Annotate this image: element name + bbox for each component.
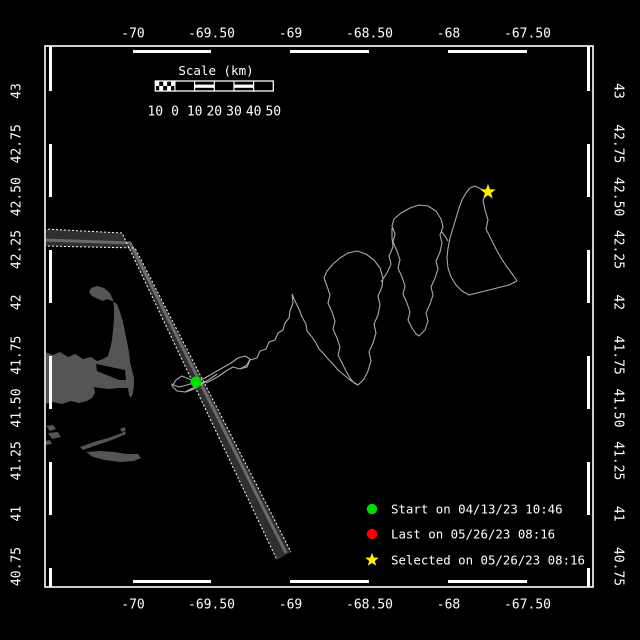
selected-star-icon: [365, 553, 379, 566]
axis-label-bottom: -69: [279, 598, 302, 613]
legend: Start on 04/13/23 10:46Last on 05/26/23 …: [365, 502, 585, 568]
axis-label-top: -68: [437, 27, 460, 42]
axis-label-left: 40.75: [10, 547, 25, 586]
axis-label-right: 42.25: [611, 230, 626, 269]
axis-label-left: 41.75: [10, 336, 25, 375]
axis-label-left: 41: [10, 506, 25, 522]
scalebar-number: 50: [265, 105, 281, 120]
axis-right: 4342.7542.5042.254241.7541.5041.254140.7…: [611, 83, 626, 586]
scalebar: Scale (km) 1001020304050: [147, 63, 281, 120]
scalebar-number: 0: [171, 105, 179, 120]
axis-label-left: 43: [10, 83, 25, 99]
legend-row: Last on 05/26/23 08:16: [367, 527, 555, 542]
axis-label-right: 40.75: [611, 547, 626, 586]
last-dot-icon: [367, 529, 377, 539]
axis-label-bottom: -68: [437, 598, 460, 613]
axis-label-right: 41: [611, 506, 626, 522]
coastline-cape-cod: [45, 286, 134, 404]
axis-label-right: 42.75: [611, 124, 626, 163]
coastline-islands: [45, 425, 141, 462]
axis-label-left: 42.75: [10, 124, 25, 163]
glider-track[interactable]: [171, 186, 517, 392]
axis-label-top: -69.50: [188, 27, 235, 42]
scalebar-bar-icon: [155, 81, 273, 91]
axis-label-top: -70: [121, 27, 144, 42]
axis-label-bottom: -68.50: [346, 598, 393, 613]
axis-label-left: 42: [10, 294, 25, 310]
scalebar-number: 30: [226, 105, 242, 120]
axis-label-bottom: -69.50: [188, 598, 235, 613]
axis-label-right: 41.50: [611, 388, 626, 427]
axis-label-right: 41.75: [611, 336, 626, 375]
scalebar-labels: 1001020304050: [147, 105, 281, 120]
legend-label: Last on 05/26/23 08:16: [391, 527, 555, 542]
selected-star-icon: [480, 184, 495, 199]
legend-row: Start on 04/13/23 10:46: [367, 502, 563, 517]
axis-top: -70-69.50-69-68.50-68-67.50: [121, 27, 551, 42]
scalebar-number: 40: [246, 105, 262, 120]
start-dot-icon: [191, 377, 202, 388]
axis-label-left: 42.50: [10, 177, 25, 216]
axis-label-bottom: -67.50: [504, 598, 551, 613]
axis-bottom: -70-69.50-69-68.50-68-67.50: [121, 598, 551, 613]
axis-label-left: 41.50: [10, 388, 25, 427]
axis-label-top: -67.50: [504, 27, 551, 42]
legend-label: Selected on 05/26/23 08:16: [391, 553, 585, 568]
scalebar-number: 10: [147, 105, 163, 120]
start-dot-icon: [367, 504, 377, 514]
scalebar-number: 10: [187, 105, 203, 120]
axis-left: 4342.7542.5042.254241.7541.5041.254140.7…: [10, 83, 25, 586]
scalebar-number: 20: [206, 105, 222, 120]
axis-label-right: 42: [611, 294, 626, 310]
selected-marker[interactable]: [480, 184, 495, 199]
axis-label-right: 42.50: [611, 177, 626, 216]
axis-label-right: 41.25: [611, 441, 626, 480]
axis-label-right: 43: [611, 83, 626, 99]
axis-label-left: 41.25: [10, 441, 25, 480]
legend-row: Selected on 05/26/23 08:16: [365, 553, 585, 568]
axis-label-top: -68.50: [346, 27, 393, 42]
axis-label-top: -69: [279, 27, 302, 42]
start-marker[interactable]: [191, 377, 202, 388]
axis-label-bottom: -70: [121, 598, 144, 613]
scalebar-title: Scale (km): [178, 63, 253, 78]
axis-label-left: 42.25: [10, 230, 25, 269]
legend-label: Start on 04/13/23 10:46: [391, 502, 563, 517]
glider-map-canvas[interactable]: -70-69.50-69-68.50-68-67.50 -70-69.50-69…: [0, 0, 640, 640]
